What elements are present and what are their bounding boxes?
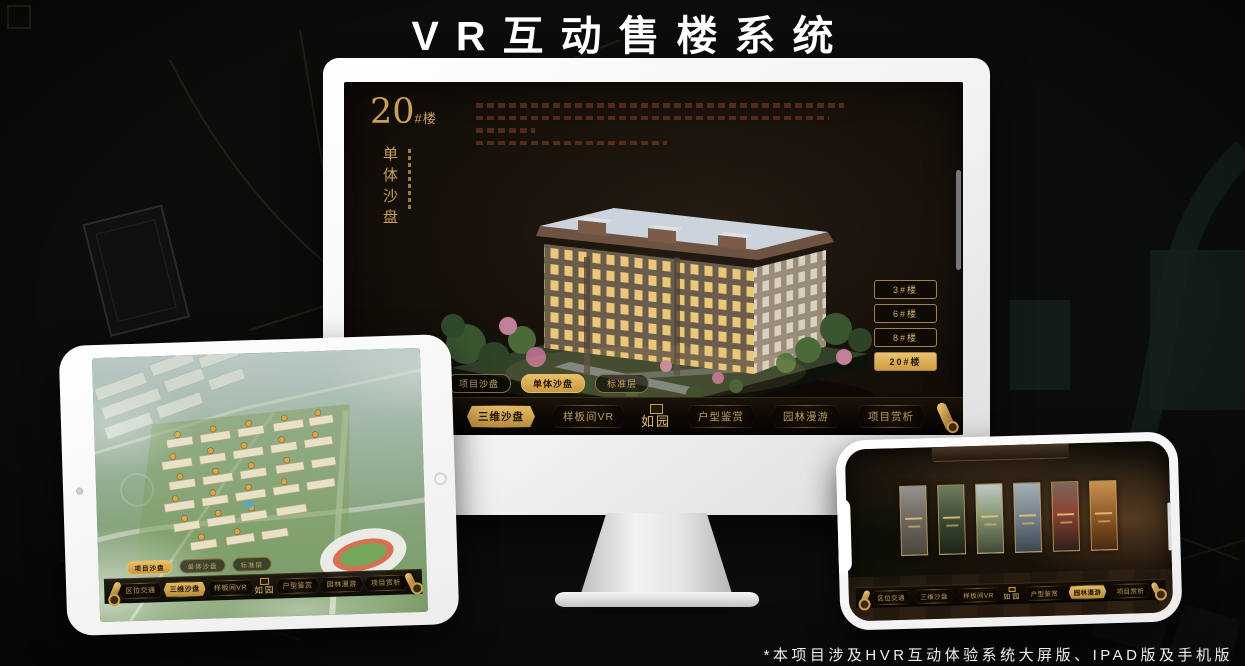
scroll-right-icon[interactable] bbox=[935, 401, 956, 432]
nav-item-garden-roam[interactable]: 园林漫游 bbox=[1067, 584, 1107, 600]
nav-item-3d-sandtable[interactable]: 三维沙盘 bbox=[914, 588, 954, 604]
building-button-6[interactable]: 6#楼 bbox=[874, 304, 937, 323]
subtab-project-sandtable[interactable]: 项目沙盘 bbox=[126, 560, 172, 575]
block-number: 20 bbox=[370, 92, 415, 132]
vertical-caption-decor bbox=[408, 149, 411, 211]
nav-item-floorplans[interactable]: 户型鉴赏 bbox=[275, 577, 319, 594]
promo-canvas: VR互动售楼系统 20#楼 单体沙盘 bbox=[0, 0, 1245, 666]
scroll-left-icon[interactable] bbox=[859, 589, 871, 607]
camera-icon bbox=[76, 488, 83, 495]
gallery-panel-2[interactable] bbox=[937, 484, 966, 555]
gallery-panel-1[interactable] bbox=[899, 485, 928, 556]
brand-logo: 如园 bbox=[1003, 586, 1021, 601]
building-selector: 3#楼 6#楼 8#楼 20#楼 bbox=[874, 275, 937, 371]
subtab-project-sandtable[interactable]: 项目沙盘 bbox=[447, 374, 511, 393]
seal-icon bbox=[1008, 587, 1015, 593]
home-indicator bbox=[1167, 502, 1172, 550]
brand-logo: 如园 bbox=[641, 404, 671, 429]
block-title: 20#楼 bbox=[370, 95, 437, 130]
home-button[interactable] bbox=[434, 472, 447, 485]
subtab-single-sandtable[interactable]: 单体沙盘 bbox=[179, 558, 225, 573]
nav-item-3d-sandtable[interactable]: 三维沙盘 bbox=[162, 581, 206, 598]
ceiling-beam-decor bbox=[932, 443, 1068, 462]
seal-icon bbox=[650, 404, 663, 414]
block-suffix: #楼 bbox=[415, 111, 437, 126]
phone-device: 区位交通 三维沙盘 样板间VR 如园 户型鉴赏 园林漫游 项目赏析 bbox=[835, 431, 1182, 630]
phone-notch bbox=[837, 498, 852, 572]
seal-icon bbox=[260, 578, 269, 585]
building-button-8[interactable]: 8#楼 bbox=[874, 328, 937, 347]
brand-logo: 如园 bbox=[254, 578, 276, 596]
subtab-standard-floor[interactable]: 标准层 bbox=[232, 557, 271, 572]
nav-item-floorplans[interactable]: 户型鉴赏 bbox=[1024, 585, 1064, 601]
monitor-stand-base bbox=[555, 592, 759, 607]
tablet-screen: 项目沙盘 单体沙盘 标准层 区位交通 三维沙盘 样板间VR 如园 户型鉴赏 园林… bbox=[92, 348, 428, 622]
gallery-panel-5[interactable] bbox=[1051, 481, 1080, 552]
scene-gallery bbox=[899, 480, 1118, 556]
building-button-20[interactable]: 20#楼 bbox=[874, 352, 937, 371]
nav-item-location[interactable]: 区位交通 bbox=[118, 582, 162, 599]
nav-item-project-view[interactable]: 项目赏析 bbox=[364, 574, 408, 591]
nav-item-project-view[interactable]: 项目赏析 bbox=[1110, 583, 1150, 599]
nav-item-floorplans[interactable]: 户型鉴赏 bbox=[686, 405, 756, 428]
gallery-panel-4[interactable] bbox=[1013, 482, 1042, 553]
nav-item-location[interactable]: 区位交通 bbox=[871, 589, 911, 605]
gallery-panel-6[interactable] bbox=[1089, 480, 1118, 551]
nav-item-3d-sandtable[interactable]: 三维沙盘 bbox=[466, 405, 536, 428]
scrollbar-thumb[interactable] bbox=[956, 170, 961, 270]
gallery-panel-3[interactable] bbox=[975, 483, 1004, 554]
page-title: VR互动售楼系统 bbox=[0, 2, 1245, 62]
nav-item-garden-roam[interactable]: 园林漫游 bbox=[319, 576, 363, 593]
subtab-single-sandtable[interactable]: 单体沙盘 bbox=[521, 374, 585, 393]
monitor-stand-neck bbox=[581, 513, 733, 595]
building-button-3[interactable]: 3#楼 bbox=[874, 280, 937, 299]
nav-item-modelroom-vr[interactable]: 样板间VR bbox=[957, 587, 1000, 603]
monitor-subtabs: 项目沙盘 单体沙盘 标准层 bbox=[447, 374, 649, 393]
monitor-base-shadow bbox=[527, 606, 787, 618]
subtab-standard-floor[interactable]: 标准层 bbox=[595, 374, 649, 393]
scroll-right-icon[interactable] bbox=[1150, 581, 1163, 599]
nav-item-project-view[interactable]: 项目赏析 bbox=[856, 405, 926, 428]
tablet-device: 项目沙盘 单体沙盘 标准层 区位交通 三维沙盘 样板间VR 如园 户型鉴赏 园林… bbox=[59, 334, 460, 636]
nav-item-modelroom-vr[interactable]: 样板间VR bbox=[207, 579, 255, 596]
phone-screen: 区位交通 三维沙盘 样板间VR 如园 户型鉴赏 园林漫游 项目赏析 bbox=[845, 441, 1174, 622]
vertical-title: 单体沙盘 bbox=[380, 146, 401, 230]
footnote: *本项目涉及HVR互动体验系统大屏版、IPAD版及手机版 bbox=[764, 644, 1233, 665]
block-subtitle: 单体沙盘 bbox=[380, 146, 411, 230]
nav-item-modelroom-vr[interactable]: 样板间VR bbox=[551, 405, 626, 428]
nav-item-garden-roam[interactable]: 园林漫游 bbox=[771, 405, 841, 428]
